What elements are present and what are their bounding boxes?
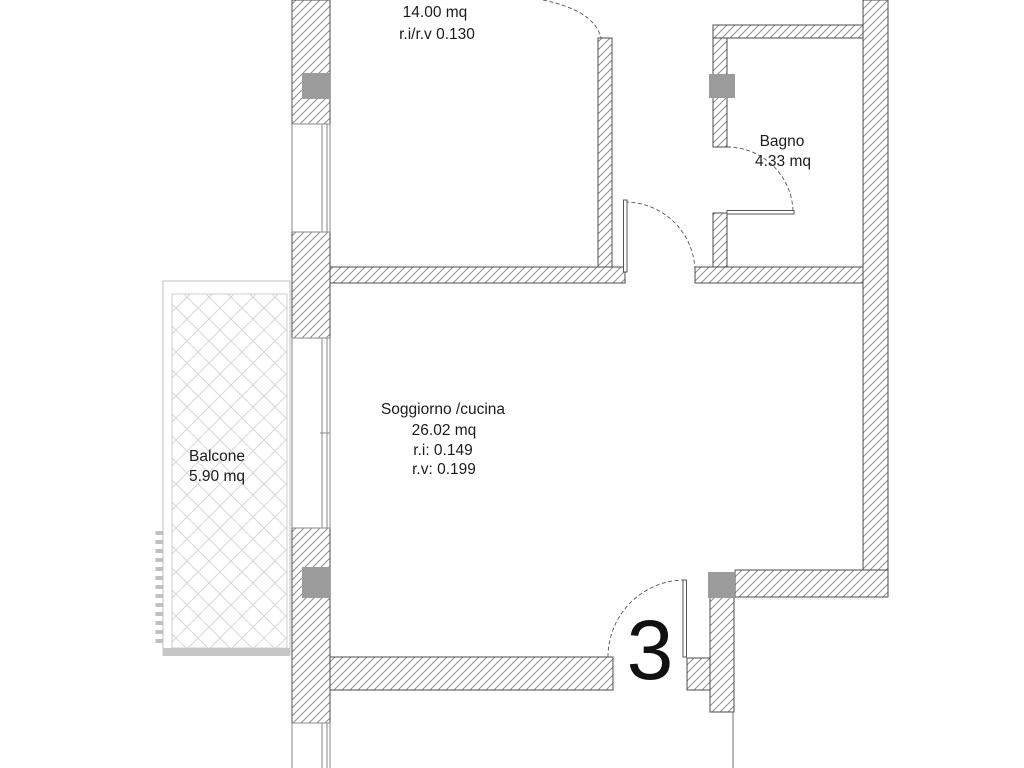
pillar-bagno-left	[709, 74, 735, 98]
door-arc-bedroom	[625, 202, 695, 272]
wall-bottom-right-horizontal	[735, 570, 888, 597]
soggiorno-ri-label: r.i: 0.149	[413, 442, 472, 459]
door-arc-top	[543, 0, 601, 38]
wall-bagno-top	[713, 25, 863, 38]
door-leaf-entrance	[683, 580, 687, 657]
window-bedroom	[292, 124, 330, 232]
wall-right-outer	[863, 0, 888, 570]
camera-area-label: 14.00 mq	[403, 4, 468, 21]
soggiorno-rv-label: r.v: 0.199	[412, 461, 476, 478]
bagno-name-label: Bagno	[760, 133, 805, 150]
wall-left-top	[292, 0, 330, 124]
window-bottom	[292, 723, 330, 768]
wall-bagno-left-lower	[713, 213, 727, 267]
door-leaf-bagno	[727, 211, 794, 215]
pillar-entry-right	[708, 572, 735, 598]
wall-entry-jamb	[687, 658, 710, 690]
wall-bottom	[330, 657, 613, 690]
balcone-name-label: Balcone	[189, 448, 245, 465]
doors	[543, 0, 794, 657]
floor-plan-svg: 14.00 mq r.i/r.v 0.130 Bagno 4.33 mq Sog…	[0, 0, 1024, 768]
wall-entry-right-vertical	[710, 597, 734, 712]
wall-horizontal-left	[330, 267, 625, 283]
door-leaf-bedroom	[624, 200, 628, 272]
wall-left-low	[292, 528, 330, 723]
balcone-area-label: 5.90 mq	[189, 468, 245, 485]
pillar-bedroom-left	[302, 73, 330, 99]
wall-left-mid	[292, 232, 330, 338]
pillars	[302, 73, 735, 598]
balcony-edge-strip	[163, 648, 290, 656]
floor-plan: 14.00 mq r.i/r.v 0.130 Bagno 4.33 mq Sog…	[0, 0, 1024, 768]
window-soggiorno	[292, 338, 330, 528]
unit-number: 3	[627, 603, 674, 697]
door-bedroom	[624, 200, 696, 272]
camera-ratio-label: r.i/r.v 0.130	[399, 26, 475, 43]
bagno-area-label: 4.33 mq	[755, 153, 811, 170]
wall-bedroom-right	[598, 38, 612, 267]
pillar-soggiorno-left	[302, 567, 330, 598]
wall-horizontal-right	[695, 267, 863, 283]
soggiorno-name-label: Soggiorno /cucina	[381, 401, 505, 418]
walls	[292, 0, 888, 723]
soggiorno-area-label: 26.02 mq	[412, 422, 477, 439]
